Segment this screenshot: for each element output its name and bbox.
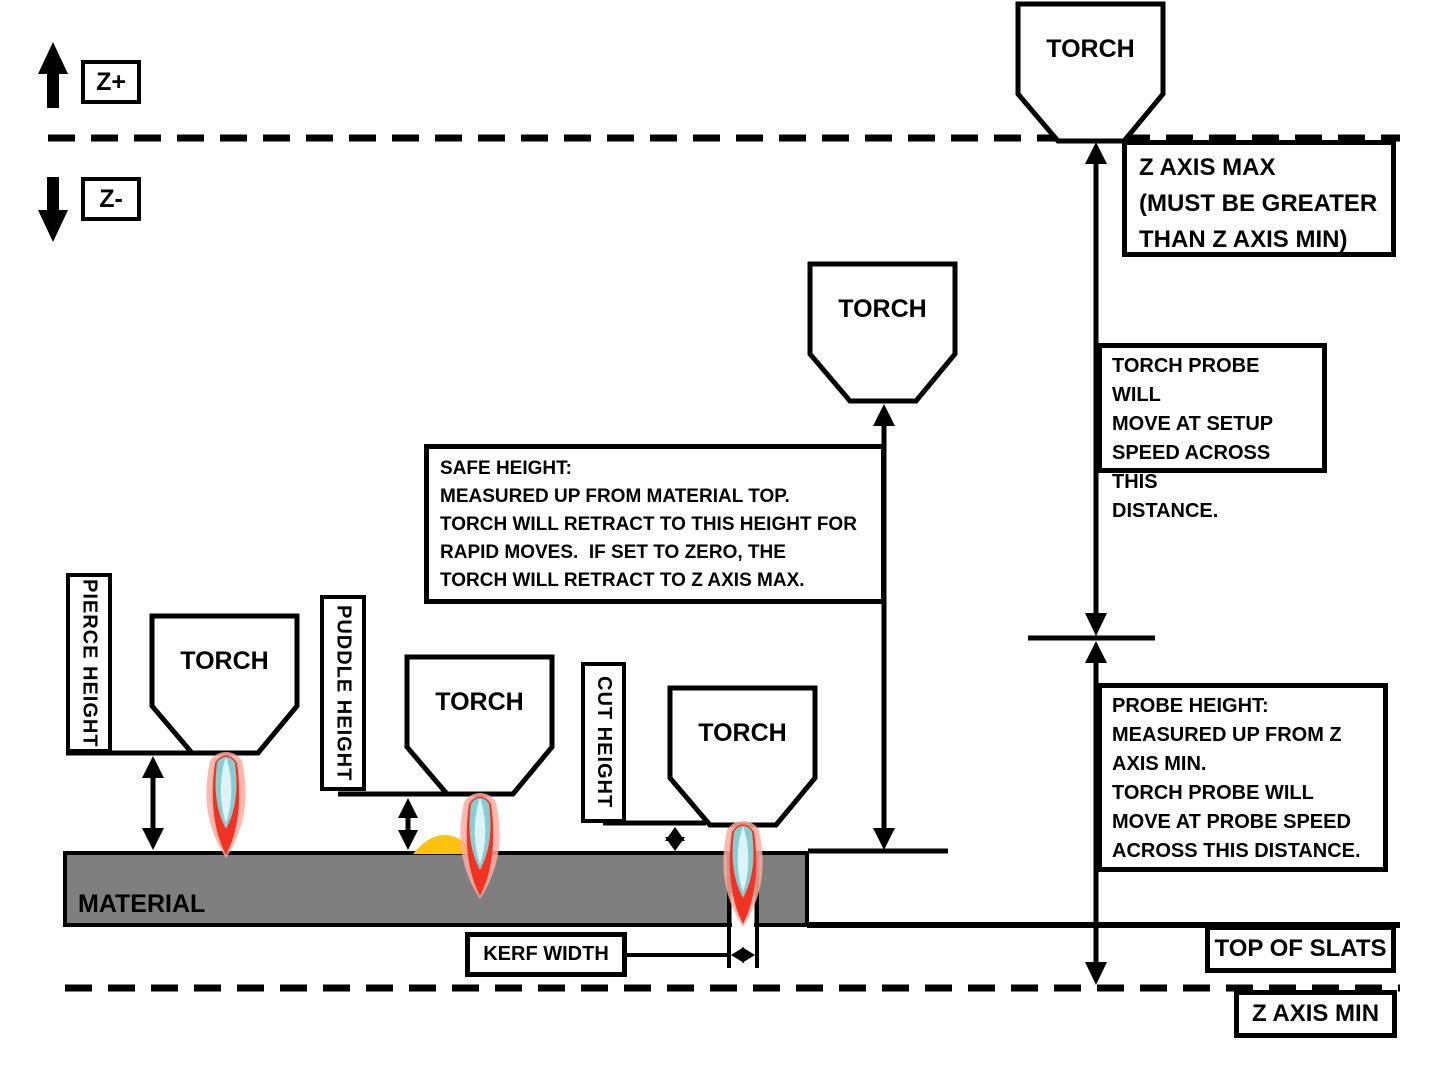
torch-label-puddle: TORCH bbox=[407, 657, 552, 747]
z-plus-arrow-icon bbox=[38, 42, 68, 108]
kerf-width-label-box: KERF WIDTH bbox=[465, 932, 627, 977]
z-axis-max-callout: Z AXIS MAX (MUST BE GREATER THAN Z AXIS … bbox=[1122, 140, 1396, 257]
z-minus-arrow-icon bbox=[38, 177, 68, 242]
z-plus-label: Z+ bbox=[96, 68, 126, 97]
z-plus-label-box: Z+ bbox=[81, 60, 141, 104]
safe-height-callout: SAFE HEIGHT: MEASURED UP FROM MATERIAL T… bbox=[424, 444, 886, 604]
flame-icon-pierce bbox=[206, 752, 245, 858]
cut-height-arrow bbox=[603, 823, 706, 851]
z-minus-label-box: Z- bbox=[81, 177, 141, 221]
probe-height-callout: PROBE HEIGHT: MEASURED UP FROM Z AXIS MI… bbox=[1097, 683, 1388, 872]
pierce-height-label-box: PIERCE HEIGHT bbox=[66, 573, 112, 753]
top-of-slats-label-box: TOP OF SLATS bbox=[1205, 925, 1396, 973]
torch-label-cut: TORCH bbox=[670, 688, 815, 778]
torch-label-top-right: TORCH bbox=[1018, 4, 1163, 94]
torch-label-pierce: TORCH bbox=[152, 616, 297, 706]
z-minus-label: Z- bbox=[99, 185, 123, 214]
pierce-height-arrow bbox=[66, 753, 196, 850]
diagram-canvas: Z+ Z- TORCH TORCH TORCH TORCH TORCH PIER… bbox=[0, 0, 1436, 1078]
puddle-height-label-box: PUDDLE HEIGHT bbox=[320, 595, 366, 791]
z-axis-min-label-box: Z AXIS MIN bbox=[1234, 990, 1397, 1038]
cut-height-label-box: CUT HEIGHT bbox=[581, 662, 626, 823]
torch-label-safe-height: TORCH bbox=[810, 264, 955, 354]
material-label: MATERIAL bbox=[78, 890, 205, 919]
kerf-width-arrow bbox=[627, 947, 755, 963]
setup-speed-callout: TORCH PROBE WILL MOVE AT SETUP SPEED ACR… bbox=[1097, 343, 1327, 473]
